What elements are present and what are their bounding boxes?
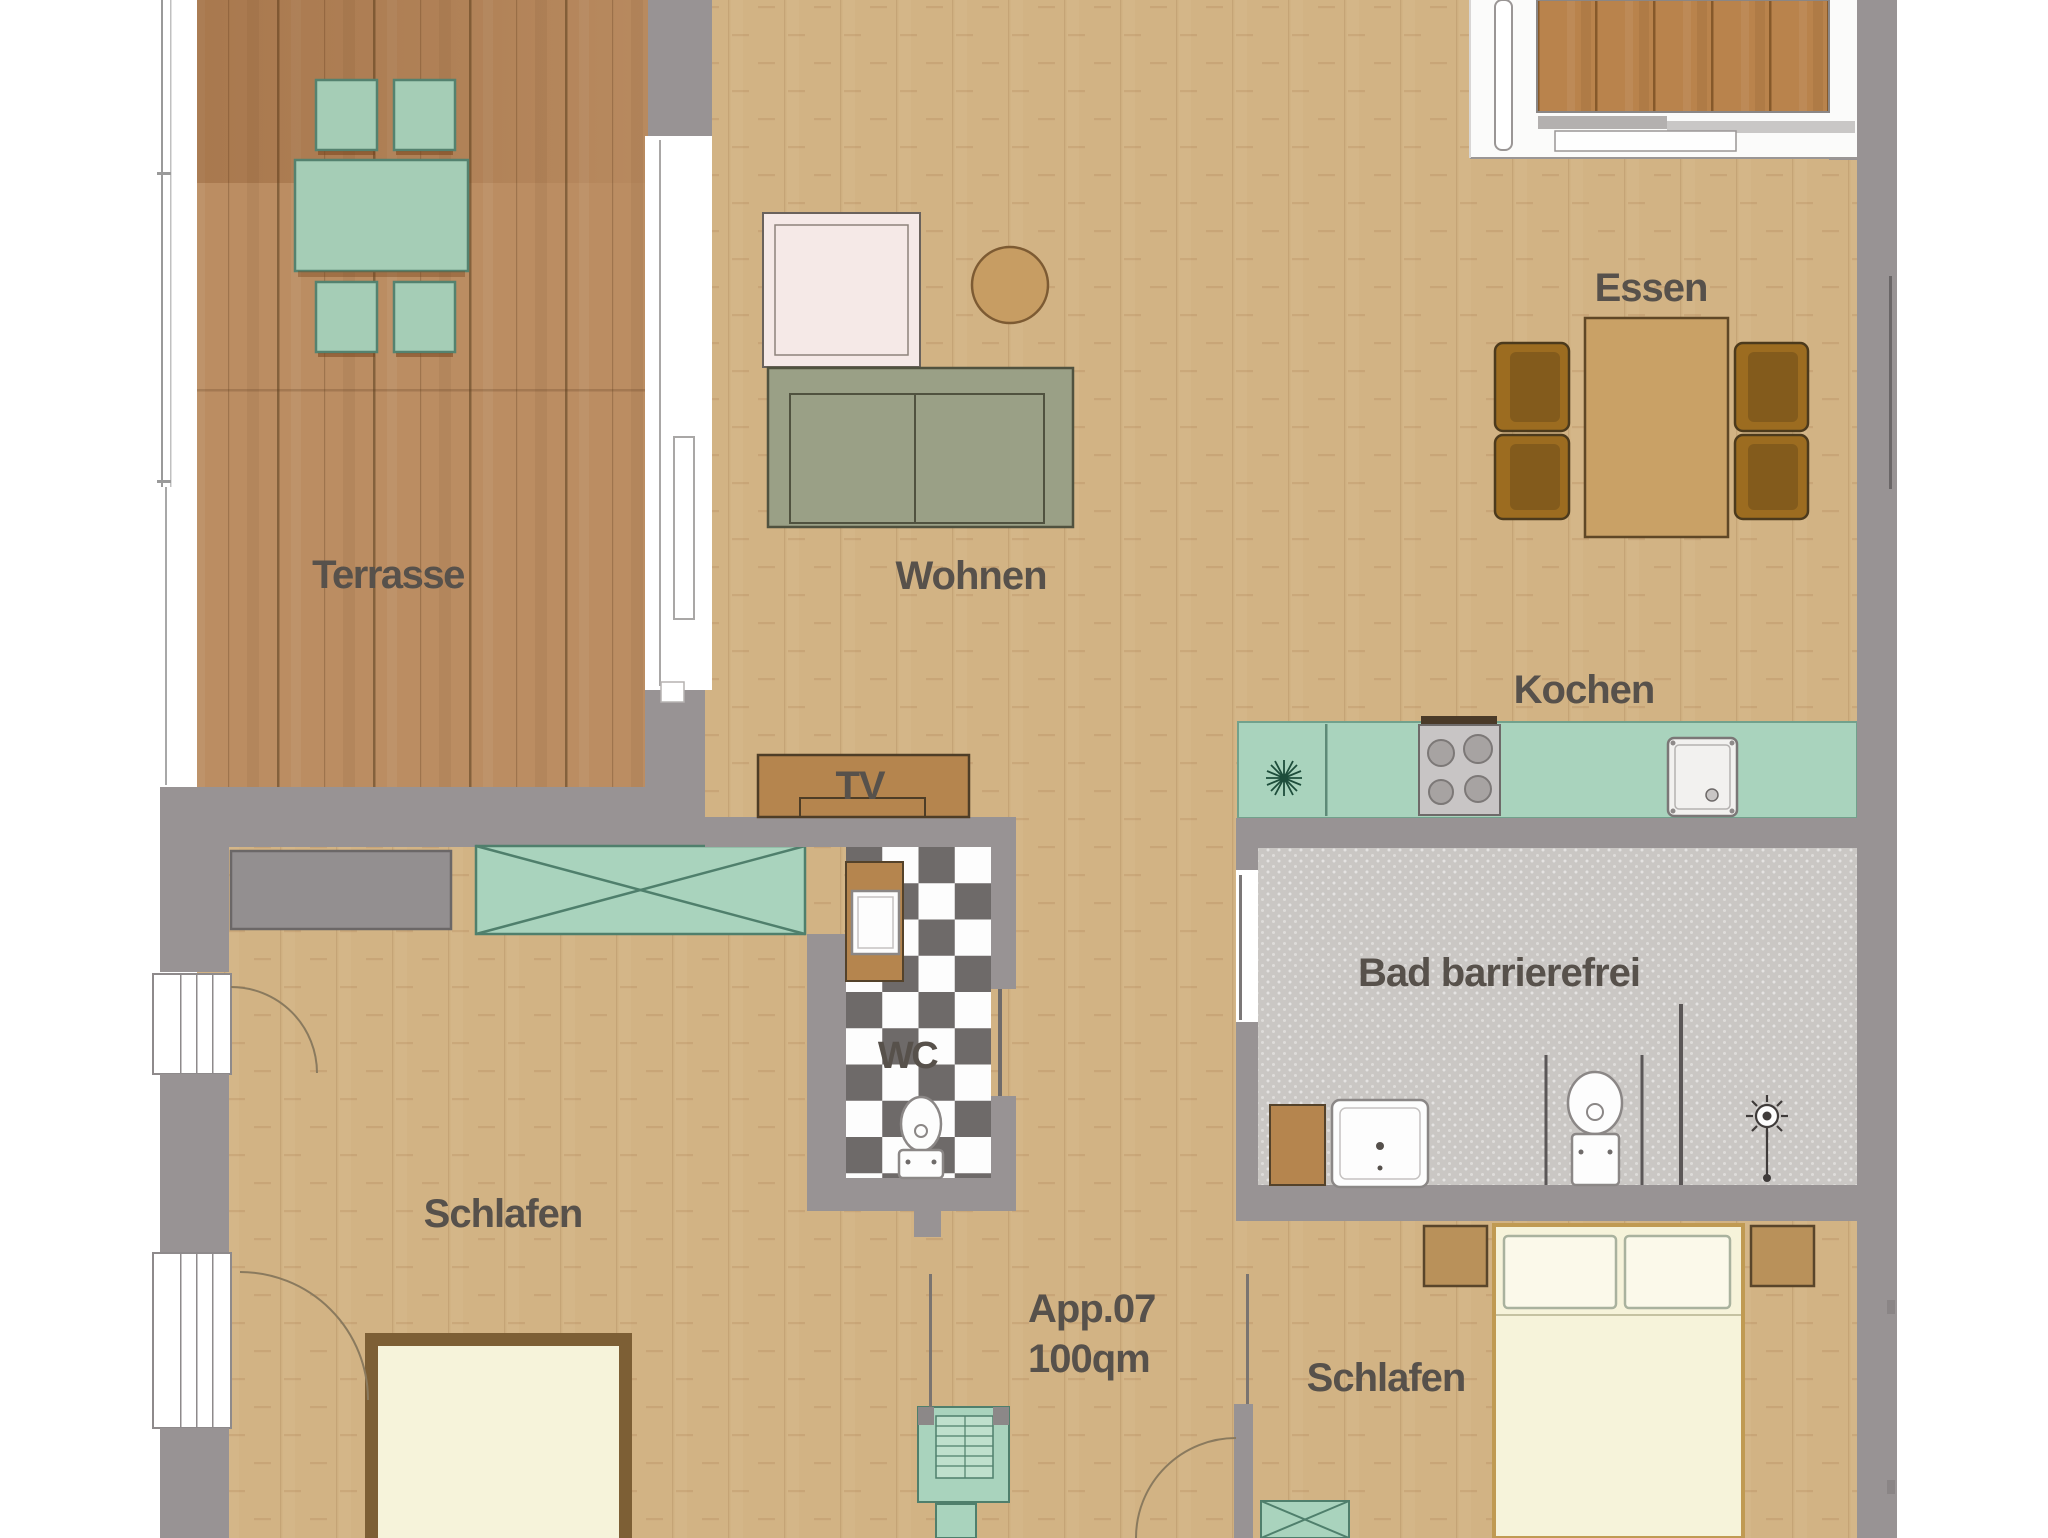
svg-text:Bad barrierefrei: Bad barrierefrei <box>1358 951 1640 995</box>
svg-text:App.07: App.07 <box>1028 1287 1155 1331</box>
svg-text:Schlafen: Schlafen <box>424 1192 583 1236</box>
svg-text:Schlafen: Schlafen <box>1307 1356 1466 1400</box>
svg-text:Essen: Essen <box>1595 266 1708 310</box>
svg-text:WC: WC <box>878 1035 938 1077</box>
svg-text:100qm: 100qm <box>1028 1337 1150 1381</box>
svg-text:TV: TV <box>835 764 885 808</box>
svg-text:Wohnen: Wohnen <box>895 554 1046 598</box>
svg-text:Terrasse: Terrasse <box>312 553 464 597</box>
svg-text:Kochen: Kochen <box>1514 668 1655 712</box>
